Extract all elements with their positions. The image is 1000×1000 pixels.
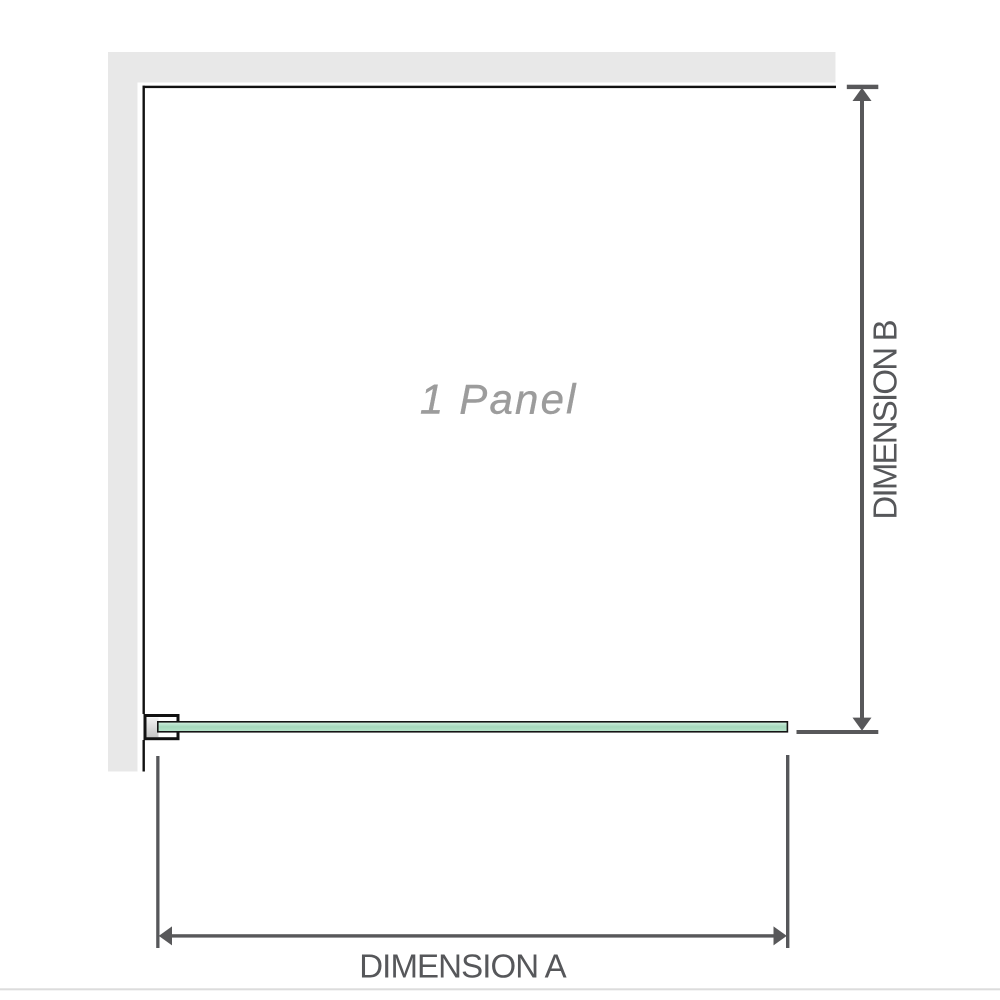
svg-text:DIMENSION B: DIMENSION B (866, 320, 903, 519)
svg-text:DIMENSION A: DIMENSION A (359, 948, 566, 985)
svg-text:1 Panel: 1 Panel (420, 375, 578, 422)
